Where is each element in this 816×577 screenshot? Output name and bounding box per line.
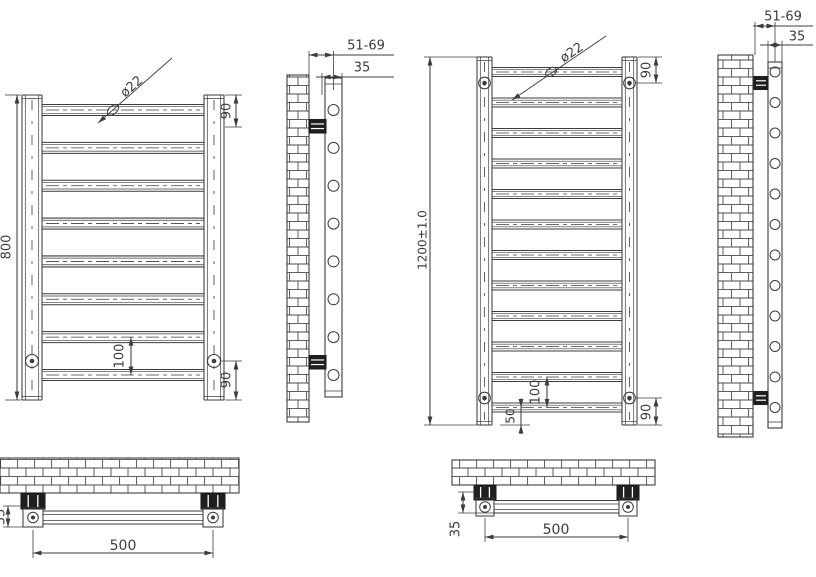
dimension-arrow xyxy=(428,417,433,426)
dimension-arrow xyxy=(325,53,334,58)
rung-end-circle xyxy=(770,128,780,138)
rung-end-circle xyxy=(770,220,780,230)
small-height-label: 800 xyxy=(0,235,15,260)
dimension-arrow xyxy=(485,535,494,540)
rung-end-circle xyxy=(770,159,780,169)
small-width-label: 500 xyxy=(110,538,137,554)
side-tube xyxy=(768,62,782,428)
circle xyxy=(626,505,630,509)
wall-bracket xyxy=(309,120,326,134)
rung-end-circle xyxy=(328,218,339,229)
small-rung-gap-label: 100 xyxy=(113,344,128,369)
large-diameter-label: ø22 xyxy=(558,40,587,66)
dimension-arrow xyxy=(234,392,239,401)
drawing-canvas: 800ø22909010051-6935500351200±1.0ø229090… xyxy=(0,0,816,577)
wall-bracket xyxy=(754,392,768,405)
dimension-arrow xyxy=(129,337,134,346)
rung-end-circle xyxy=(328,256,339,267)
rung-end-circle xyxy=(328,105,339,116)
small-top-offset-label: 90 xyxy=(220,103,235,120)
large-rung-gap-label: 100 xyxy=(529,380,544,405)
small-bottom-offset-label: 90 xyxy=(220,372,235,389)
brick-wall xyxy=(452,460,655,485)
wall-bracket-pin xyxy=(482,81,487,86)
dimension-arrow xyxy=(461,492,466,501)
technical-drawing-page: 800ø22909010051-6935500351200±1.0ø229090… xyxy=(0,0,816,577)
small-depth-label: 35 xyxy=(354,61,371,76)
rung-end-circle xyxy=(328,332,339,343)
dimension-arrow xyxy=(33,551,42,556)
brick-wall xyxy=(718,55,753,437)
wall-bracket-pin xyxy=(212,359,217,364)
dimension-arrow xyxy=(15,95,20,104)
large-radiator-side-view: 51-6935 xyxy=(718,10,813,438)
wall-bracket-pin xyxy=(627,396,632,401)
rung-end-circle xyxy=(770,98,780,108)
dimension-arrow xyxy=(461,505,466,514)
small-diameter-label: ø22 xyxy=(118,73,146,100)
circle xyxy=(483,505,487,509)
rung-end-circle xyxy=(770,189,780,199)
wall-bracket xyxy=(754,77,768,90)
dimension-arrow xyxy=(620,535,629,540)
large-width-label: 500 xyxy=(543,522,570,538)
wall-bracket-pin xyxy=(627,81,632,86)
small-radiator-side-view: 51-6935 xyxy=(287,39,394,423)
wall-bracket xyxy=(201,493,225,509)
rung-end-circle xyxy=(328,142,339,153)
dimension-arrow xyxy=(15,392,20,401)
rung-end-circle xyxy=(770,372,780,382)
circle xyxy=(211,516,215,520)
large-depth-label: 35 xyxy=(789,30,806,45)
small-radiator-front-view: 800ø229090100 xyxy=(0,58,242,400)
rung-end-circle xyxy=(770,403,780,413)
side-tube xyxy=(325,78,342,397)
dimension-arrow xyxy=(234,95,239,104)
small-radiator-bottom-view: 50035 xyxy=(0,458,239,558)
dimension-arrow xyxy=(755,24,764,29)
large-wall-gap-label: 35 xyxy=(449,521,464,538)
large-bottom-offset-label: 90 xyxy=(640,404,655,421)
dimension-arrow xyxy=(774,43,783,48)
dimension-arrow xyxy=(309,53,318,58)
wall-bracket xyxy=(309,356,326,370)
dimension-arrow xyxy=(205,551,214,556)
brick-wall xyxy=(287,75,309,422)
small-wall-gap-label: 35 xyxy=(0,509,9,526)
rung-end-circle xyxy=(770,342,780,352)
dimension-arrow xyxy=(334,75,343,80)
large-radiator-bottom-view: 50035 xyxy=(449,460,656,542)
wall-bracket xyxy=(21,493,45,509)
rung-end-circle xyxy=(770,311,780,321)
dimension-arrow xyxy=(129,367,134,376)
dimension-arrow xyxy=(234,361,239,370)
dimension-arrow xyxy=(519,425,524,434)
rung-end-circle xyxy=(328,180,339,191)
large-top-offset-label: 90 xyxy=(640,62,655,79)
rung-end-circle xyxy=(770,250,780,260)
dimension-arrow xyxy=(322,75,331,80)
rung-end-circle xyxy=(328,294,339,305)
large-radiator-front-view: 1200±1.0ø22909010050 xyxy=(416,36,663,434)
small-wall-distance-label: 51-69 xyxy=(347,39,385,54)
wall-bracket-pin xyxy=(30,359,35,364)
rung-end-circle xyxy=(328,370,339,381)
wall-bracket-pin xyxy=(482,396,487,401)
large-wall-distance-label: 51-69 xyxy=(764,10,802,25)
brick-wall xyxy=(0,458,239,493)
rung-end-circle xyxy=(770,281,780,291)
large-end-gap-label: 50 xyxy=(504,408,518,423)
dimension-arrow xyxy=(428,57,433,66)
rung-end-circle xyxy=(770,67,780,77)
circle xyxy=(31,516,35,520)
large-height-label: 1200±1.0 xyxy=(416,210,430,270)
